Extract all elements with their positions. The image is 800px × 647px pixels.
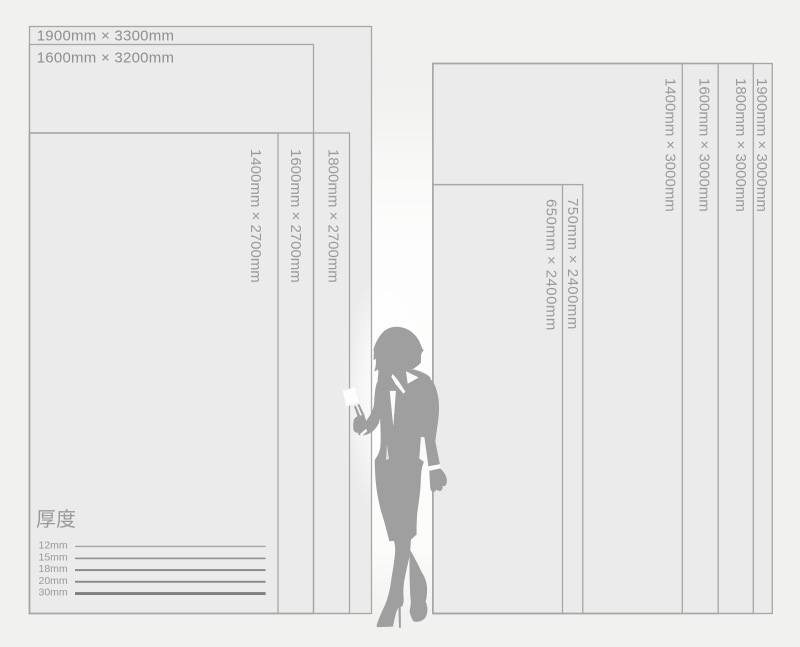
svg-text:1600mm × 2700mm: 1600mm × 2700mm [287,149,304,283]
svg-text:20mm: 20mm [39,575,68,587]
svg-text:1600mm × 3000mm: 1600mm × 3000mm [696,78,713,212]
svg-text:18mm: 18mm [39,563,68,575]
svg-text:1400mm × 2700mm: 1400mm × 2700mm [247,149,264,283]
svg-text:1400mm × 3000mm: 1400mm × 3000mm [662,78,679,212]
svg-text:厚度: 厚度 [36,508,76,531]
svg-text:1800mm × 2700mm: 1800mm × 2700mm [325,149,342,283]
svg-text:12mm: 12mm [39,540,68,552]
svg-text:1900mm × 3300mm: 1900mm × 3300mm [37,28,175,45]
svg-text:1600mm × 3200mm: 1600mm × 3200mm [37,50,175,67]
svg-text:1900mm × 3000mm: 1900mm × 3000mm [753,78,770,212]
svg-text:15mm: 15mm [39,551,68,563]
svg-text:650mm × 2400mm: 650mm × 2400mm [543,199,560,331]
svg-text:1800mm × 3000mm: 1800mm × 3000mm [732,78,749,212]
svg-text:750mm × 2400mm: 750mm × 2400mm [564,198,581,330]
svg-text:30mm: 30mm [39,587,68,599]
